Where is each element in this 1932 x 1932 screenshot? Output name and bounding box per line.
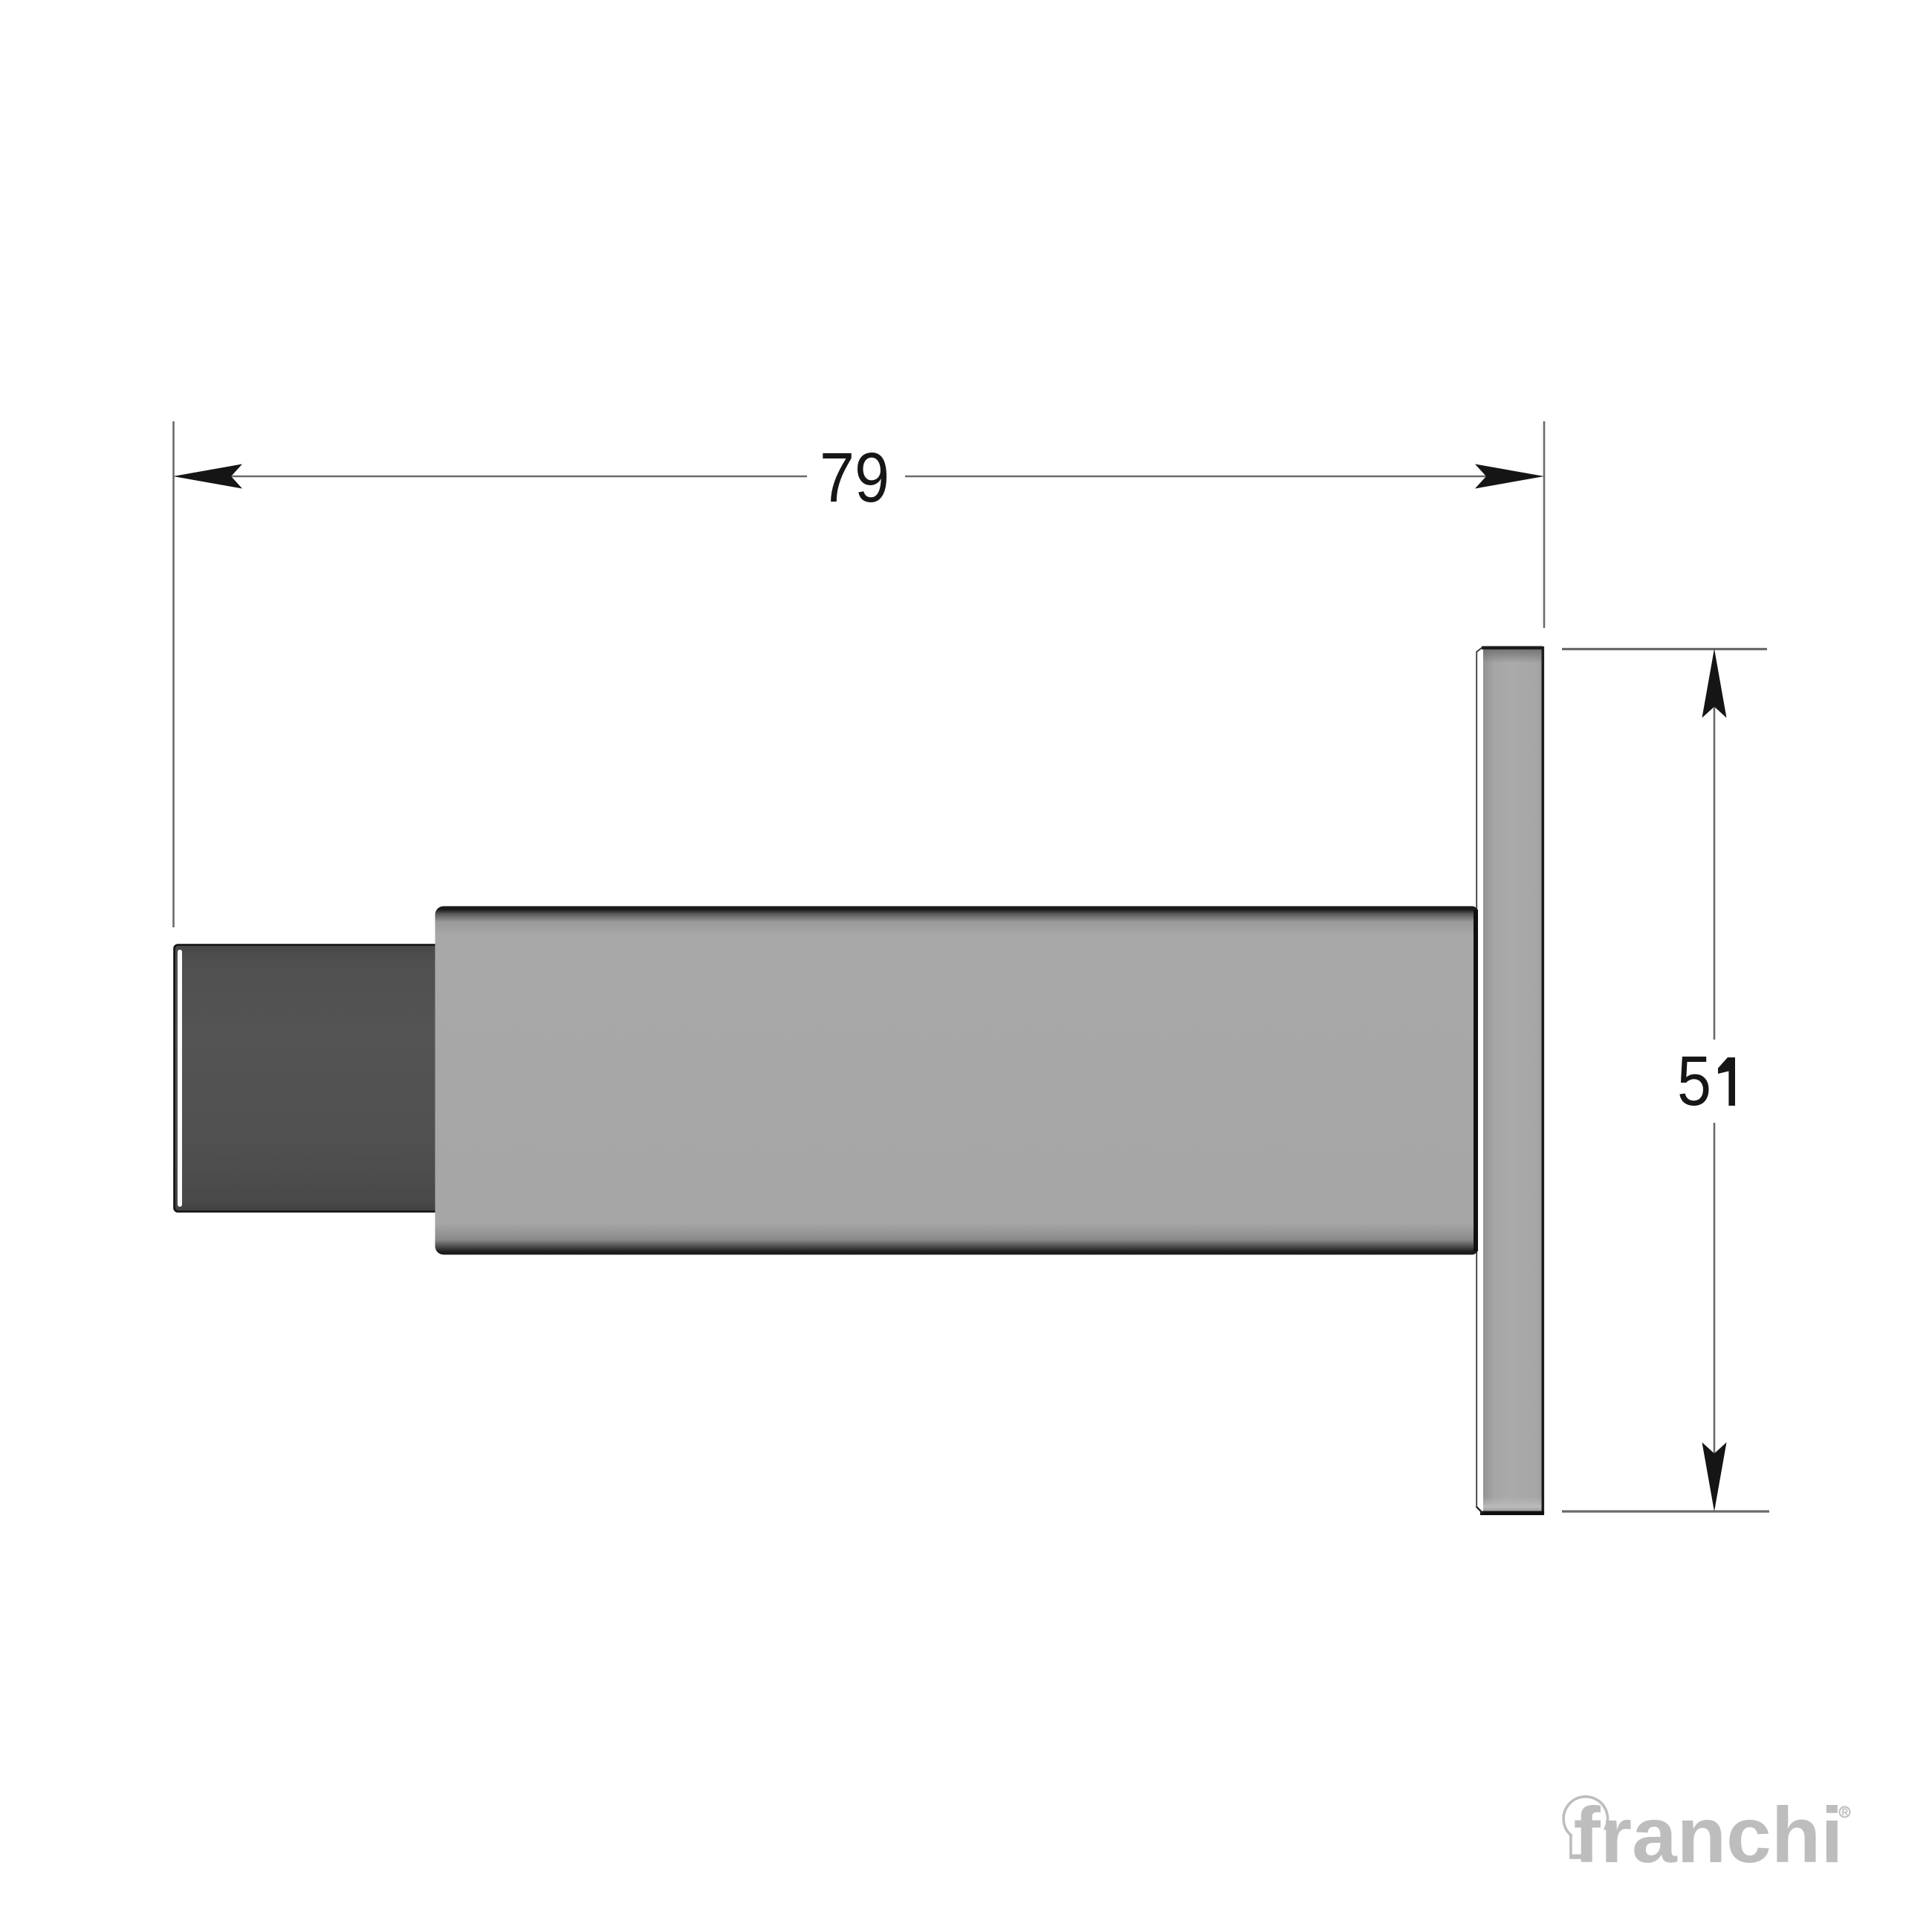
svg-text:5: 5 [1677,1042,1711,1121]
svg-text:franchi: franchi [1574,1792,1844,1879]
svg-text:79: 79 [820,438,889,517]
